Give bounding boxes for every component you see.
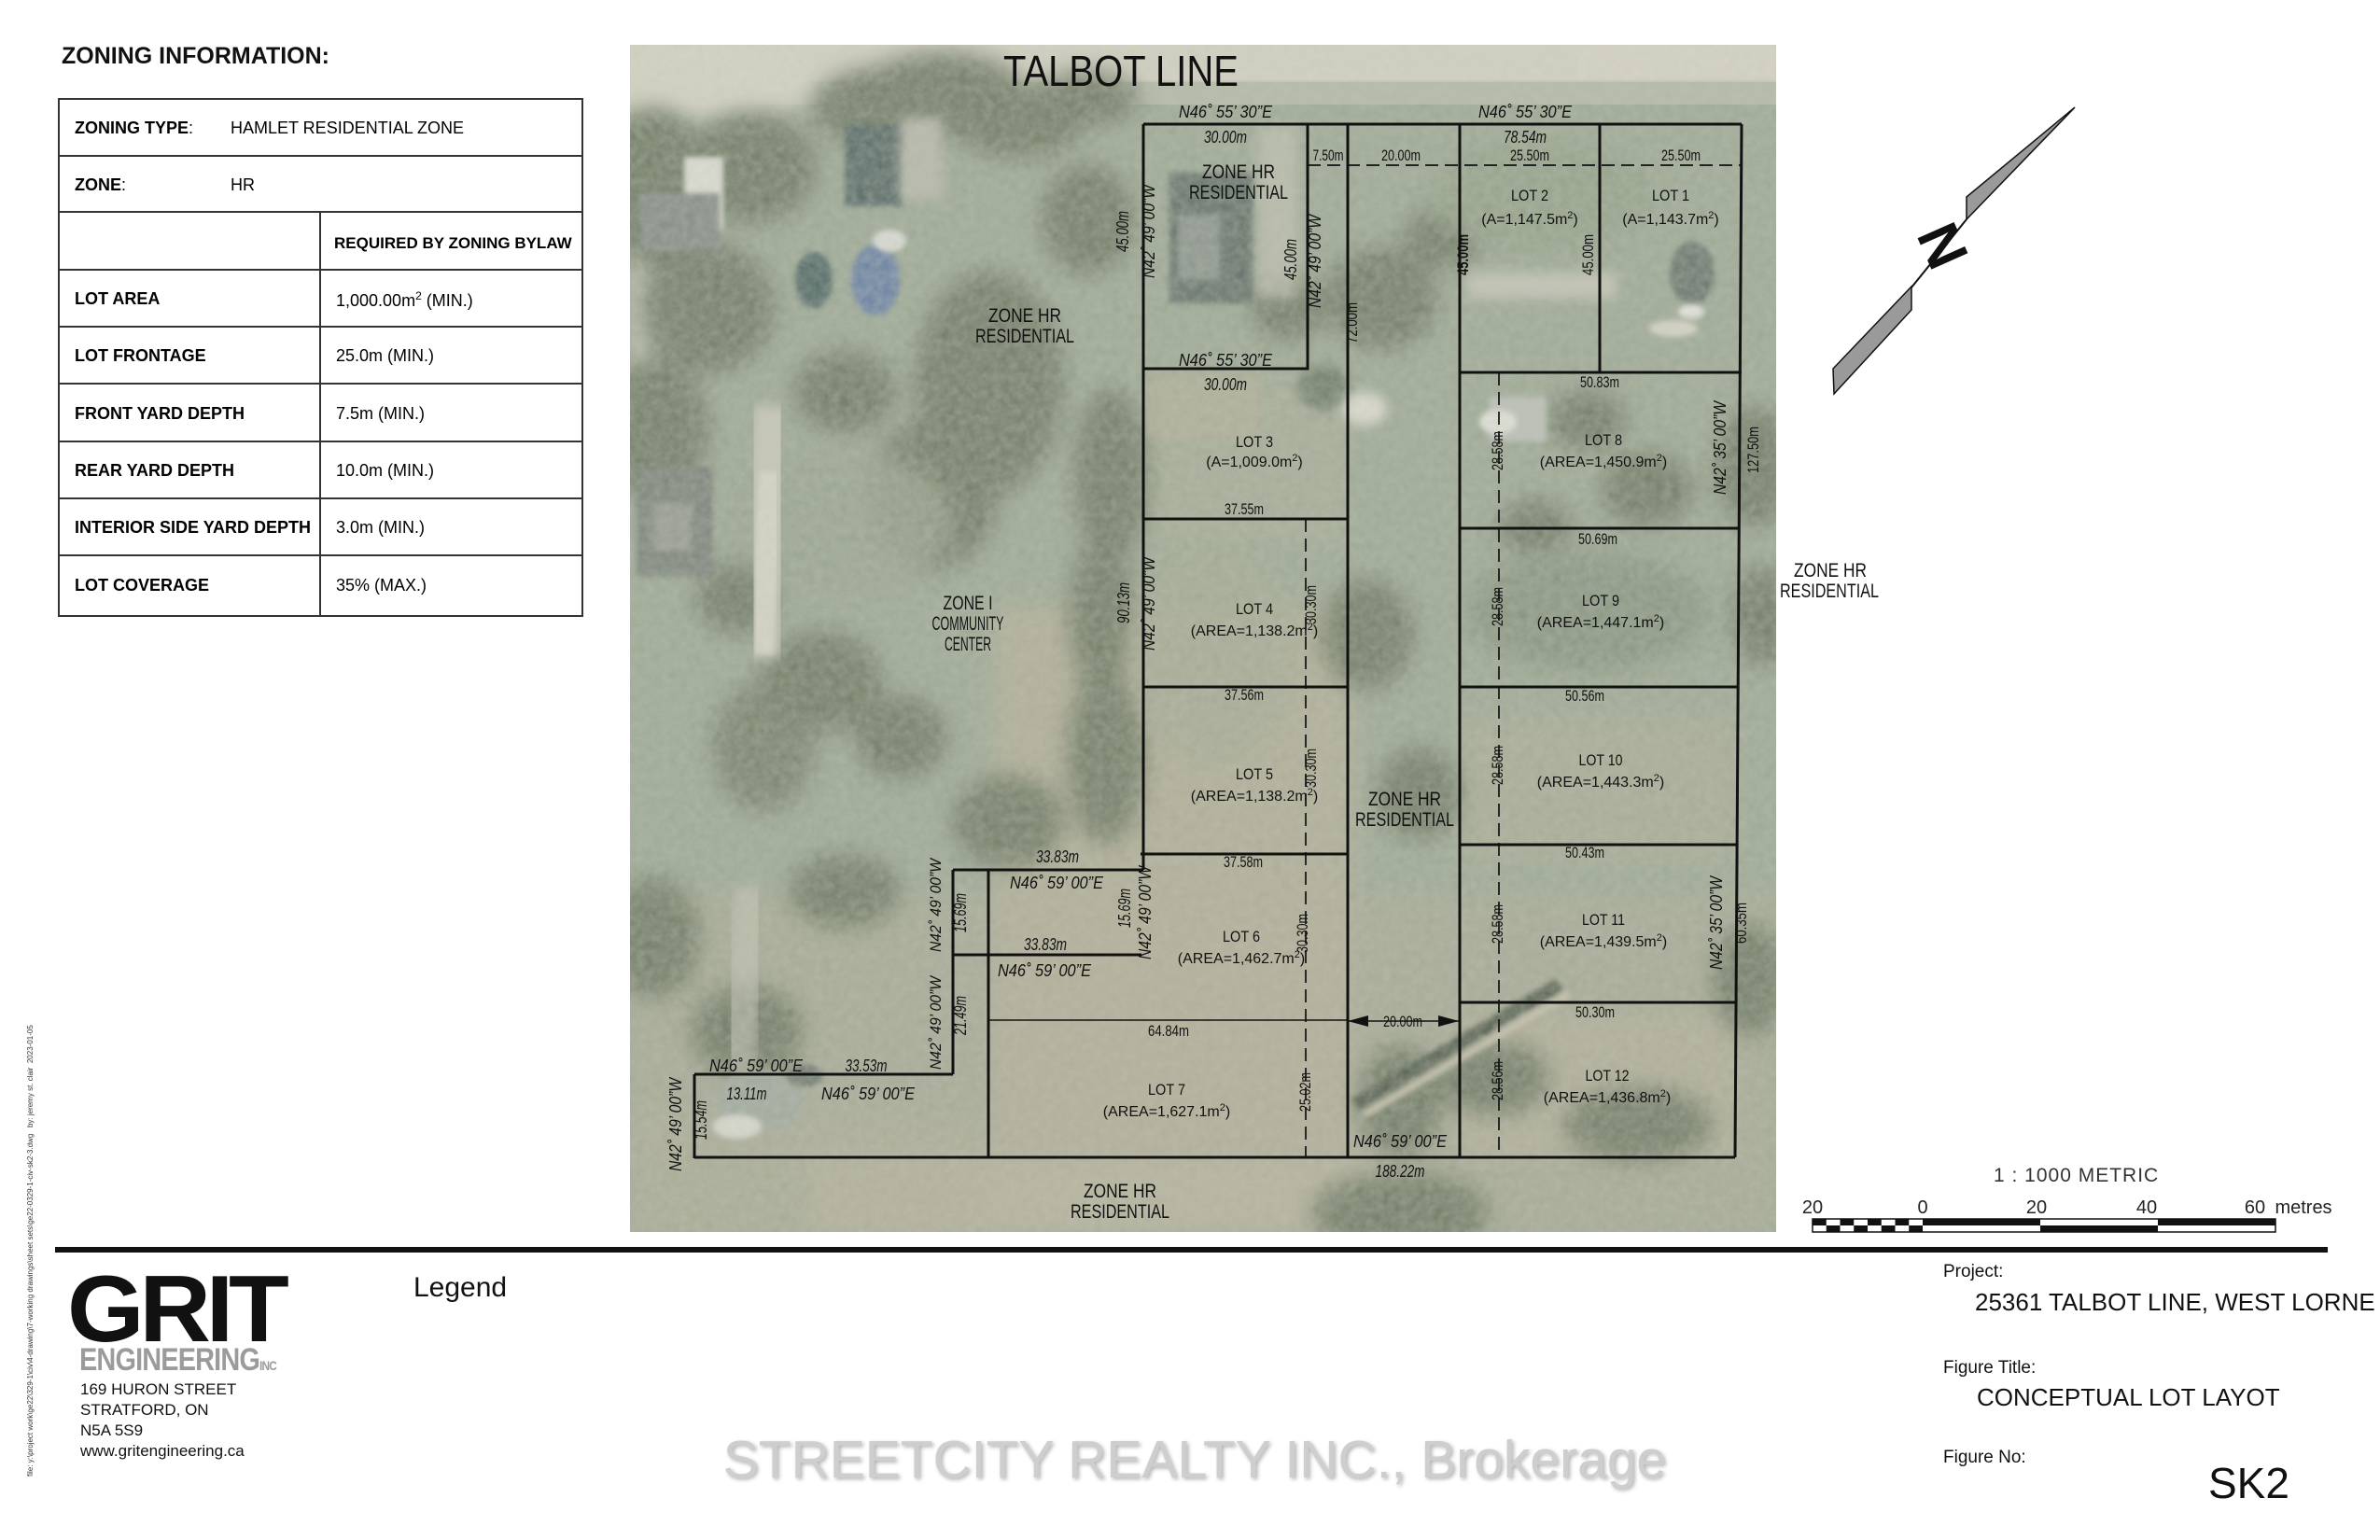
svg-text:15.69m: 15.69m <box>1115 889 1134 928</box>
svg-text:TALBOT LINE: TALBOT LINE <box>1003 47 1239 95</box>
svg-text:50.30m: 50.30m <box>1575 1003 1615 1021</box>
svg-text:30.00m: 30.00m <box>1204 375 1247 394</box>
svg-text:metres: metres <box>2275 1197 2331 1218</box>
svg-text:20.00m: 20.00m <box>1383 1013 1422 1030</box>
svg-text:28.56m: 28.56m <box>1489 1061 1506 1100</box>
svg-text:LOT 5: LOT 5 <box>1236 765 1273 783</box>
svg-text:(A=1,147.5m2): (A=1,147.5m2) <box>1481 210 1578 228</box>
svg-text:LOT 1: LOT 1 <box>1652 187 1689 204</box>
svg-text:RESIDENTIAL: RESIDENTIAL <box>1780 581 1879 602</box>
svg-text:(AREA=1,439.5m2): (AREA=1,439.5m2) <box>1540 932 1667 950</box>
svg-text:50.56m: 50.56m <box>1565 687 1604 705</box>
svg-text:N42˚ 49’ 00”W: N42˚ 49’ 00”W <box>666 1076 685 1171</box>
svg-text:N46˚ 59’ 00”E: N46˚ 59’ 00”E <box>1010 874 1104 892</box>
svg-text:45.00m: 45.00m <box>1454 234 1472 275</box>
svg-text:N46˚ 55’ 30”E: N46˚ 55’ 30”E <box>1179 351 1273 370</box>
svg-text:N: N <box>1904 214 1980 278</box>
svg-text:(A=1,143.7m2): (A=1,143.7m2) <box>1622 210 1719 228</box>
svg-text:RESIDENTIAL: RESIDENTIAL <box>975 326 1074 347</box>
svg-text:28.58m: 28.58m <box>1489 746 1506 785</box>
svg-text:N42˚ 49’ 00”W: N42˚ 49’ 00”W <box>927 857 945 952</box>
svg-text:60: 60 <box>2245 1197 2265 1218</box>
svg-text:LOT 3: LOT 3 <box>1236 433 1273 451</box>
svg-text:25.50m: 25.50m <box>1661 147 1701 164</box>
svg-text:30.00m: 30.00m <box>1204 128 1247 147</box>
svg-text:78.54m: 78.54m <box>1504 128 1547 147</box>
svg-text:(AREA=1,447.1m2): (AREA=1,447.1m2) <box>1537 613 1664 631</box>
svg-text:1 : 1000 METRIC: 1 : 1000 METRIC <box>1994 1165 2159 1186</box>
svg-text:CENTER: CENTER <box>945 634 991 655</box>
svg-text:(AREA=1,462.7m2): (AREA=1,462.7m2) <box>1178 949 1305 967</box>
svg-text:N46˚ 55’ 30”E: N46˚ 55’ 30”E <box>1478 103 1573 121</box>
svg-text:20: 20 <box>1802 1197 1823 1218</box>
svg-text:N46˚ 59’ 00”E: N46˚ 59’ 00”E <box>998 961 1092 980</box>
svg-text:25.02m: 25.02m <box>1296 1072 1314 1112</box>
svg-text:ZONE HR: ZONE HR <box>1794 560 1867 581</box>
svg-text:50.69m: 50.69m <box>1578 530 1617 548</box>
svg-text:ZONE HR: ZONE HR <box>1368 789 1441 810</box>
svg-text:N46˚ 59’ 00”E: N46˚ 59’ 00”E <box>1353 1132 1448 1151</box>
svg-text:N46˚ 55’ 30”E: N46˚ 55’ 30”E <box>1179 103 1273 121</box>
svg-text:RESIDENTIAL: RESIDENTIAL <box>1189 182 1288 203</box>
svg-text:COMMUNITY: COMMUNITY <box>932 613 1004 635</box>
svg-text:20: 20 <box>2026 1197 2047 1218</box>
svg-text:N42˚ 49’ 00”W: N42˚ 49’ 00”W <box>1140 555 1158 651</box>
svg-text:72.00m: 72.00m <box>1343 302 1361 343</box>
svg-text:28.58m: 28.58m <box>1489 587 1506 626</box>
svg-text:ZONE HR: ZONE HR <box>988 305 1061 327</box>
svg-text:N42˚ 49’ 00”W: N42˚ 49’ 00”W <box>1306 213 1324 308</box>
svg-text:37.55m: 37.55m <box>1225 500 1264 518</box>
svg-text:50.43m: 50.43m <box>1565 844 1604 861</box>
svg-text:N42˚ 49’ 00”W: N42˚ 49’ 00”W <box>1140 183 1158 278</box>
svg-text:N42˚ 49’ 00”W: N42˚ 49’ 00”W <box>1136 864 1155 959</box>
svg-text:LOT 7: LOT 7 <box>1148 1081 1185 1099</box>
svg-text:60.35m: 60.35m <box>1732 903 1750 944</box>
svg-text:N46˚ 59’ 00”E: N46˚ 59’ 00”E <box>709 1057 804 1075</box>
svg-text:(AREA=1,436.8m2): (AREA=1,436.8m2) <box>1544 1088 1671 1106</box>
svg-text:15.54m: 15.54m <box>692 1100 710 1140</box>
svg-text:(AREA=1,443.3m2): (AREA=1,443.3m2) <box>1537 773 1664 791</box>
svg-text:LOT 9: LOT 9 <box>1582 592 1619 609</box>
svg-text:LOT 6: LOT 6 <box>1223 928 1260 945</box>
svg-text:37.58m: 37.58m <box>1224 853 1263 871</box>
svg-text:33.83m: 33.83m <box>1024 935 1067 954</box>
svg-text:(AREA=1,627.1m2): (AREA=1,627.1m2) <box>1103 1102 1230 1120</box>
svg-text:LOT 12: LOT 12 <box>1586 1067 1630 1085</box>
svg-text:40: 40 <box>2136 1197 2157 1218</box>
svg-text:ZONE HR: ZONE HR <box>1202 161 1275 183</box>
svg-text:28.58m: 28.58m <box>1489 431 1506 470</box>
svg-text:N46˚ 59’ 00”E: N46˚ 59’ 00”E <box>821 1085 916 1103</box>
svg-text:37.56m: 37.56m <box>1225 686 1264 704</box>
svg-text:(AREA=1,450.9m2): (AREA=1,450.9m2) <box>1540 453 1667 470</box>
svg-text:N42˚ 35’ 00”W: N42˚ 35’ 00”W <box>1711 399 1729 495</box>
svg-text:188.22m: 188.22m <box>1376 1162 1425 1181</box>
svg-text:(AREA=1,138.2m2): (AREA=1,138.2m2) <box>1191 787 1318 805</box>
svg-text:RESIDENTIAL: RESIDENTIAL <box>1355 809 1454 831</box>
svg-text:LOT 2: LOT 2 <box>1511 187 1548 204</box>
svg-text:90.13m: 90.13m <box>1114 582 1133 623</box>
svg-text:30.30m: 30.30m <box>1302 749 1320 788</box>
svg-text:ZONE HR: ZONE HR <box>1084 1181 1156 1202</box>
svg-text:45.00m: 45.00m <box>1113 211 1132 252</box>
svg-text:33.53m: 33.53m <box>846 1057 888 1075</box>
svg-text:7.50m: 7.50m <box>1313 147 1344 164</box>
svg-text:LOT 4: LOT 4 <box>1236 600 1273 618</box>
svg-text:N42˚ 35’ 00”W: N42˚ 35’ 00”W <box>1707 875 1726 970</box>
svg-text:45.00m: 45.00m <box>1281 239 1300 280</box>
svg-text:LOT 8: LOT 8 <box>1585 431 1622 449</box>
svg-text:21.49m: 21.49m <box>951 996 970 1036</box>
svg-text:13.11m: 13.11m <box>727 1085 767 1103</box>
svg-text:30.30m: 30.30m <box>1294 914 1311 953</box>
svg-text:N42˚ 49’ 00”W: N42˚ 49’ 00”W <box>927 974 945 1070</box>
svg-text:RESIDENTIAL: RESIDENTIAL <box>1071 1201 1169 1223</box>
svg-text:LOT 11: LOT 11 <box>1582 911 1625 929</box>
svg-text:50.83m: 50.83m <box>1580 373 1619 391</box>
svg-text:30.30m: 30.30m <box>1302 585 1320 624</box>
svg-text:LOT 10: LOT 10 <box>1579 751 1623 769</box>
svg-text:ZONE I: ZONE I <box>944 593 993 614</box>
svg-text:33.83m: 33.83m <box>1036 847 1079 866</box>
svg-text:(A=1,009.0m2): (A=1,009.0m2) <box>1206 453 1303 470</box>
svg-text:45.00m: 45.00m <box>1579 234 1597 275</box>
svg-text:15.69m: 15.69m <box>951 893 970 932</box>
svg-text:(AREA=1,138.2m2): (AREA=1,138.2m2) <box>1191 622 1318 639</box>
svg-text:64.84m: 64.84m <box>1148 1022 1189 1040</box>
svg-text:0: 0 <box>1917 1197 1927 1218</box>
svg-text:25.50m: 25.50m <box>1510 147 1549 164</box>
svg-text:20.00m: 20.00m <box>1381 147 1421 164</box>
svg-text:127.50m: 127.50m <box>1744 427 1762 473</box>
svg-text:28.58m: 28.58m <box>1489 904 1506 944</box>
